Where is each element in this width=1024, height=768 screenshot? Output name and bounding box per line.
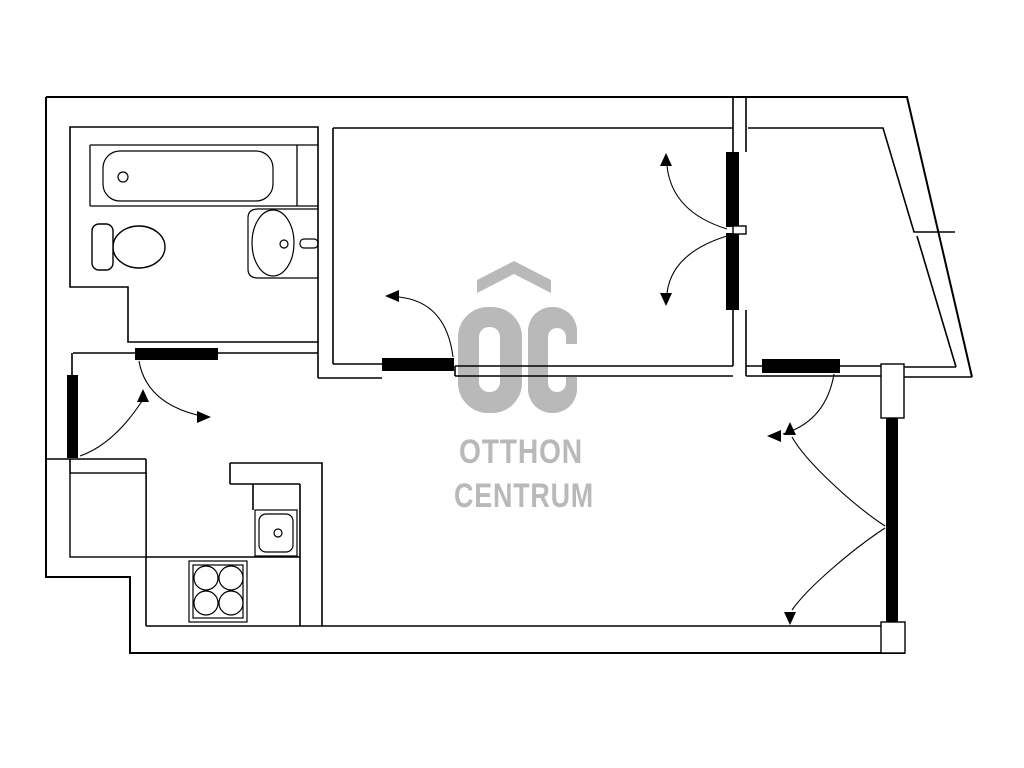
watermark-word-2: CENTRUM — [454, 477, 594, 515]
floor-plan-drawing: OTTHON CENTRUM — [0, 0, 1024, 768]
floor-plan-page: OTTHON CENTRUM — [0, 0, 1024, 768]
kitchen-cabinet-icon — [70, 473, 146, 557]
wall-pillar — [881, 364, 904, 418]
wall-pillar — [881, 622, 905, 653]
watermark-word-1: OTTHON — [459, 433, 583, 471]
toilet-icon — [92, 224, 165, 270]
